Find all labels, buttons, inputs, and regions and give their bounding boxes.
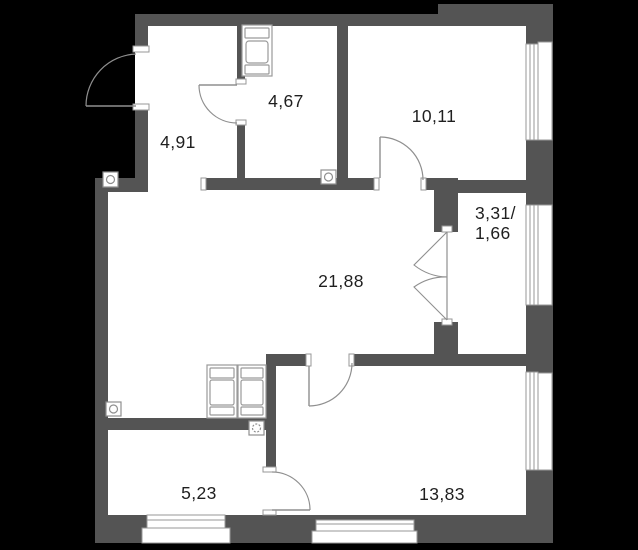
floor-plan-canvas: 4,91 4,67 10,11 3,31/ 1,66 21,88 5,23 13… — [0, 0, 638, 550]
wall-segment — [237, 122, 245, 178]
door-swing-arc — [86, 54, 136, 106]
door-jamb — [133, 46, 149, 52]
washing-machine-icon — [242, 25, 272, 76]
wall-segment — [135, 110, 148, 178]
door-jamb — [263, 510, 276, 515]
window-kitchen — [142, 515, 230, 543]
wall-segment — [135, 14, 148, 46]
windows-right — [526, 42, 552, 470]
wall-segment — [438, 4, 553, 26]
riser-symbol-icon — [106, 402, 121, 416]
apartment-floor — [108, 26, 526, 530]
wall-segment — [266, 354, 276, 472]
wall-segment — [95, 178, 108, 543]
wall-segment — [434, 178, 458, 232]
door-jamb — [263, 467, 276, 472]
window-balcony — [526, 205, 552, 305]
area-label-kitchen: 5,23 — [181, 483, 217, 503]
wall-segment — [337, 26, 348, 178]
area-label-room-2: 13,83 — [419, 484, 465, 504]
appliance-icon — [238, 365, 266, 418]
wall-segment — [203, 178, 375, 190]
riser-symbol-icon — [321, 170, 336, 184]
door-jamb — [236, 79, 246, 84]
riser-symbol-icon — [103, 172, 118, 187]
wall-segment — [458, 180, 526, 193]
door-jamb — [374, 178, 379, 190]
riser-symbol-icon — [249, 421, 264, 435]
area-label-balcony-line2: 1,66 — [475, 223, 511, 243]
area-label-bedroom: 10,11 — [412, 106, 457, 126]
window-room-2-right — [526, 372, 552, 470]
window-room-2-bottom — [312, 520, 417, 543]
area-label-living-room: 21,88 — [318, 271, 364, 291]
floor-plan-svg: 4,91 4,67 10,11 3,31/ 1,66 21,88 5,23 13… — [0, 0, 638, 550]
wall-segment — [353, 354, 526, 366]
door-jamb — [442, 226, 452, 232]
window-bedroom — [526, 42, 552, 140]
wall-end-cap — [201, 178, 206, 190]
appliance-icon — [207, 365, 237, 418]
area-label-bathroom: 4,67 — [268, 91, 304, 111]
area-label-hallway: 4,91 — [160, 132, 196, 152]
wall-segment — [135, 14, 438, 26]
door-jamb — [306, 354, 311, 366]
entrance-door — [86, 46, 149, 110]
door-opening — [135, 46, 148, 110]
area-label-balcony-line1: 3,31/ — [475, 203, 516, 223]
door-jamb — [133, 104, 149, 110]
door-jamb — [236, 120, 246, 125]
